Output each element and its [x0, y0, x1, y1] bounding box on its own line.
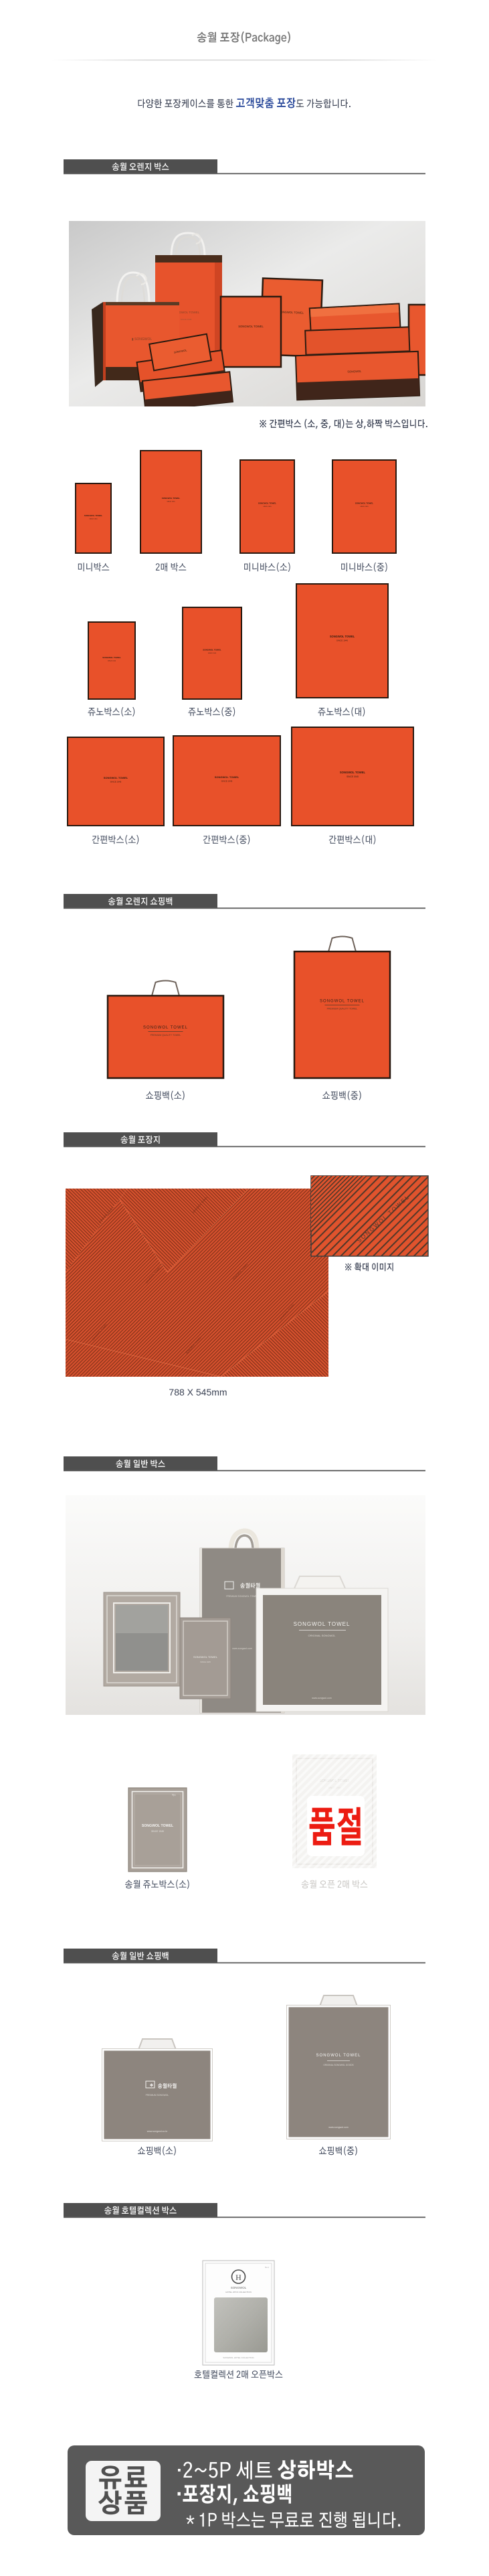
svg-text:ORIGINAL SONGWOL: ORIGINAL SONGWOL [308, 1634, 336, 1637]
svg-text:SINCE 1945: SINCE 1945 [360, 506, 369, 508]
svg-text:SONGWOL TOWEL: SONGWOL TOWEL [84, 514, 103, 517]
svg-text:SONGWOL TOWEL: SONGWOL TOWEL [340, 771, 366, 774]
svg-text:박스: 박스 [172, 1793, 176, 1797]
svg-text:PREMIUM SONGWOL: PREMIUM SONGWOL [146, 2094, 169, 2097]
svg-text:SONGWOL: SONGWOL [231, 2286, 247, 2289]
svg-text:PREMIUM QUALITY TOWEL: PREMIUM QUALITY TOWEL [151, 1034, 181, 1037]
svg-text:SINCE 1945: SINCE 1945 [336, 639, 348, 642]
svg-text:PREMIUM SONGWOL TOWEL: PREMIUM SONGWOL TOWEL [226, 1595, 258, 1598]
svg-text:▮ SONGWOL: ▮ SONGWOL [132, 337, 152, 342]
svg-text:SINCE 1945: SINCE 1945 [89, 518, 98, 520]
svg-text:www.songwol.com: www.songwol.com [232, 1647, 252, 1650]
svg-text:SONGWOL TOWEL: SONGWOL TOWEL [258, 502, 277, 504]
svg-text:www.songwol.com: www.songwol.com [312, 1697, 332, 1699]
svg-text:SONGWOL TOWEL: SONGWOL TOWEL [355, 502, 374, 504]
svg-text:www.songwol.com: www.songwol.com [328, 2126, 349, 2129]
svg-text:SONGWOL TOWEL: SONGWOL TOWEL [142, 1824, 174, 1828]
svg-text:H: H [235, 2273, 241, 2282]
svg-text:PREMIUM QUALITY TOWEL: PREMIUM QUALITY TOWEL [327, 1008, 358, 1010]
svg-text:SONGWOL TOWEL: SONGWOL TOWEL [330, 635, 355, 638]
svg-text:SONGWOL TOWEL: SONGWOL TOWEL [320, 1000, 365, 1004]
svg-text:SONGWOL TOWEL: SONGWOL TOWEL [162, 497, 181, 500]
svg-text:SINCE 1945: SINCE 1945 [151, 1830, 164, 1833]
svg-text:SONGWOL TOWEL: SONGWOL TOWEL [143, 1026, 188, 1030]
svg-text:SINCE 1945: SINCE 1945 [181, 318, 192, 321]
svg-text:SONGWOL TOWEL: SONGWOL TOWEL [215, 775, 239, 779]
svg-text:SINCE 1945: SINCE 1945 [221, 780, 233, 783]
svg-text:ORIGINAL SONGWOL GOODS: ORIGINAL SONGWOL GOODS [323, 2064, 353, 2066]
svg-text:SONGWOL TOWEL: SONGWOL TOWEL [102, 656, 121, 659]
svg-text:SINCE 1945: SINCE 1945 [108, 661, 116, 662]
svg-text:SONGWOL TOWEL: SONGWOL TOWEL [193, 1655, 218, 1659]
svg-text:No.1: No.1 [265, 2266, 269, 2269]
svg-text:SINCE 1945: SINCE 1945 [110, 781, 122, 783]
svg-text:www.songwol.co.kr: www.songwol.co.kr [147, 2130, 168, 2133]
svg-text:SONGWOL TOWEL: SONGWOL TOWEL [203, 648, 221, 651]
svg-text:SONGWOL TOWEL: SONGWOL TOWEL [238, 325, 264, 328]
svg-text:SINCE 1945: SINCE 1945 [200, 1661, 211, 1663]
svg-text:SONGWOL: SONGWOL [347, 370, 362, 374]
svg-text:SINCE 1945: SINCE 1945 [263, 506, 272, 508]
svg-text:SINCE 1945: SINCE 1945 [347, 775, 359, 778]
svg-text:SONGWOL TOWEL: SONGWOL TOWEL [104, 776, 128, 779]
svg-text:SONGWOL TOWEL: SONGWOL TOWEL [294, 1621, 351, 1627]
svg-text:SONGWOL TOWEL: SONGWOL TOWEL [316, 2054, 361, 2058]
svg-text:SINCE 1945: SINCE 1945 [208, 653, 217, 654]
svg-text:SONGWOL HOTEL COLLECTION: SONGWOL HOTEL COLLECTION [223, 2356, 254, 2359]
svg-text:788 X 545mm: 788 X 545mm [169, 1387, 227, 1397]
svg-text:✽: ✽ [150, 2083, 153, 2088]
svg-text:SINCE 1945: SINCE 1945 [167, 501, 175, 502]
svg-text:HOTEL 2PCS COLLECTION: HOTEL 2PCS COLLECTION [225, 2291, 252, 2293]
